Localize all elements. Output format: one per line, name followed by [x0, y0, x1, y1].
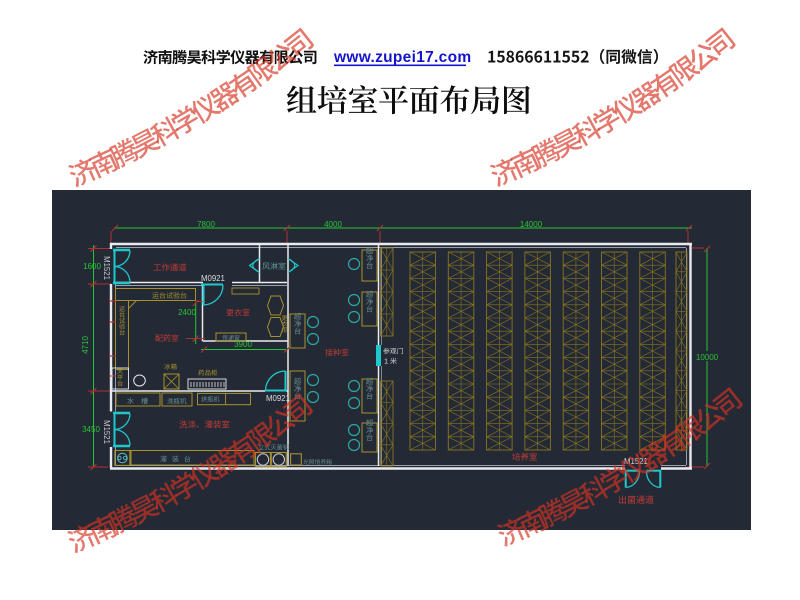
svg-text:1600: 1600 — [83, 262, 101, 271]
svg-text:10000: 10000 — [696, 353, 719, 362]
svg-text:14000: 14000 — [520, 220, 543, 229]
svg-text:M0921: M0921 — [266, 394, 290, 403]
svg-text:7800: 7800 — [197, 220, 215, 229]
svg-text:www.zupei17.com: www.zupei17.com — [333, 49, 471, 66]
svg-text:M0921: M0921 — [201, 274, 225, 283]
svg-text:1: 1 — [384, 357, 388, 366]
svg-text:M1521: M1521 — [102, 420, 111, 444]
svg-text:2400: 2400 — [178, 308, 196, 317]
svg-text:4710: 4710 — [81, 336, 90, 354]
svg-text:4000: 4000 — [324, 220, 342, 229]
svg-text:3450: 3450 — [82, 425, 100, 434]
svg-text:M1521: M1521 — [102, 256, 111, 280]
